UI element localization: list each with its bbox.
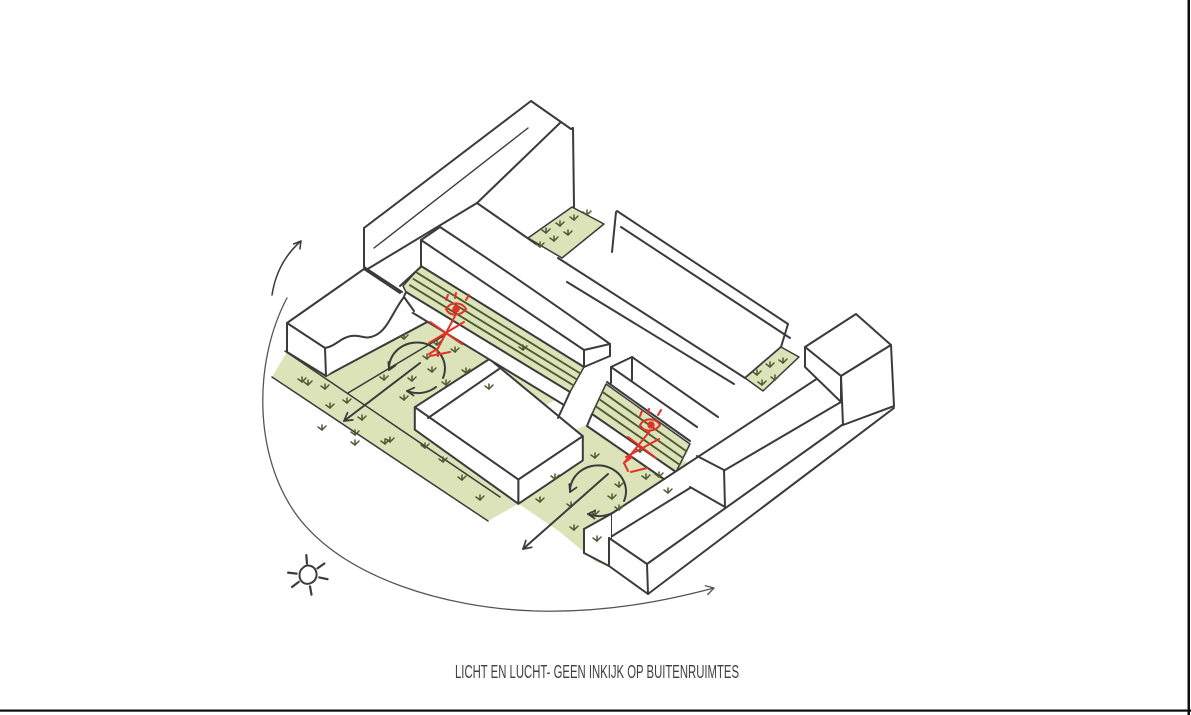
svg-text:LICHT EN LUCHT- GEEN INKIJK OP: LICHT EN LUCHT- GEEN INKIJK OP BUITENRUI… (455, 662, 739, 682)
